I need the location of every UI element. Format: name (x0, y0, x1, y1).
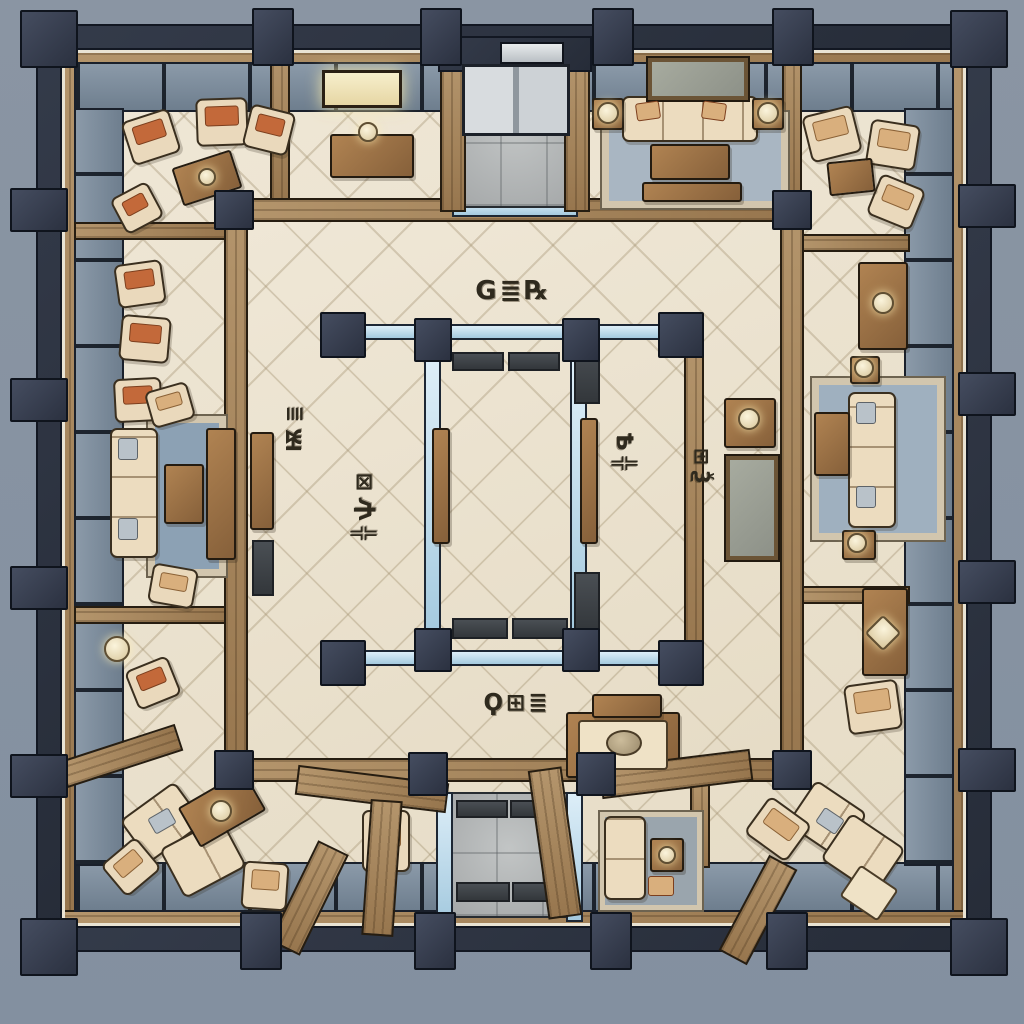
room-label-court-west: ╬ѱ⊠ (352, 467, 377, 540)
court-east-wall (684, 332, 704, 662)
gallery-lamp (738, 408, 760, 430)
south-column-3 (590, 912, 632, 970)
sofa-pillow (118, 518, 138, 540)
table-bowl (198, 168, 216, 186)
inner-column-se (772, 750, 812, 790)
inner-column-s2 (576, 752, 616, 796)
floorplan-illustration: G≣℞ Ѭ≣ ╬ѱ⊠ Ѣ╬ ⊞Ѯ Ϙ⊞≣ (0, 0, 1024, 1024)
sofa-pillow (856, 402, 876, 424)
sofa-pillow (118, 438, 138, 460)
west-column-4 (10, 754, 68, 798)
west-column-1 (10, 188, 68, 232)
cushion (121, 192, 150, 217)
court-column-n2 (562, 318, 600, 362)
wall-east-1 (798, 234, 910, 252)
court-column-se (658, 640, 704, 686)
armchair (195, 97, 249, 147)
court-column-s2 (562, 628, 600, 672)
floor-cushion (648, 876, 674, 896)
cabinet-lamp (872, 292, 894, 314)
sofa-pillow (701, 100, 727, 121)
inner-column-ne (772, 190, 812, 230)
inner-wall-east (780, 198, 804, 782)
tall-console (206, 428, 236, 560)
east-column-3 (958, 560, 1016, 604)
court-doormat-1 (452, 352, 504, 371)
court-column-n1 (414, 318, 452, 362)
south-column-4 (766, 912, 808, 970)
cushion (131, 118, 167, 146)
gallery-art-panel (726, 456, 778, 560)
stair-landing-mat (456, 800, 508, 818)
cushion (812, 114, 850, 142)
sofa (604, 816, 646, 900)
table-lamp (854, 358, 874, 378)
east-column-4 (958, 748, 1016, 792)
floor-lamp (104, 636, 130, 662)
cushion (159, 572, 189, 592)
armchair (113, 259, 167, 309)
court-column-sw (320, 640, 366, 686)
armchair (147, 562, 199, 609)
inner-column-s1 (408, 752, 448, 796)
sofa-pillow (856, 486, 876, 508)
table-bowl (210, 800, 232, 822)
coffee-table (814, 412, 850, 476)
cushion (853, 688, 892, 714)
corner-column-se (950, 918, 1008, 976)
court-door-east (580, 418, 598, 544)
cushion (881, 183, 916, 211)
court-column-nw (320, 312, 366, 358)
cushion (254, 113, 286, 137)
picture-frame (648, 58, 748, 100)
room-label-east-wing: ⊞Ѯ (690, 448, 714, 489)
coffee-table (164, 464, 204, 524)
cushion (762, 807, 801, 843)
frame-south (36, 926, 992, 952)
armchair (118, 314, 172, 364)
wall-west-1 (74, 222, 230, 240)
table-lamp (847, 533, 867, 553)
north-column-2 (420, 8, 462, 66)
cushion (129, 323, 163, 345)
north-column-4 (772, 8, 814, 66)
armchair (865, 118, 922, 171)
sofa-pillow (635, 100, 661, 121)
court-doormat-2 (508, 352, 560, 371)
elevator-header-panel (500, 42, 564, 64)
corner-column-nw (20, 10, 78, 68)
court-glass-north (360, 324, 664, 340)
coffee-table (650, 144, 730, 180)
cushion (135, 666, 167, 692)
south-column-2 (414, 912, 456, 970)
north-column-3 (592, 8, 634, 66)
wall-lightbox (322, 70, 402, 108)
east-column-2 (958, 372, 1016, 416)
cushion (154, 391, 183, 412)
frame-east (966, 24, 992, 952)
west-gallery-shelf (252, 540, 274, 596)
bench-cabinet (592, 694, 662, 718)
corner-column-ne (950, 10, 1008, 68)
vase (358, 122, 378, 142)
inner-column-nw (214, 190, 254, 230)
cushion (204, 105, 239, 127)
coffee-table (826, 158, 875, 197)
south-column-1 (240, 912, 282, 970)
table-lamp (757, 102, 779, 124)
court-step-1 (452, 618, 508, 639)
north-column-1 (252, 8, 294, 66)
media-console (642, 182, 742, 202)
room-label-west-wing: Ѭ≣ (282, 401, 306, 452)
cube-chair (240, 860, 289, 911)
inner-column-sw (214, 750, 254, 790)
court-step-2 (512, 618, 568, 639)
elevator-doors (462, 64, 570, 136)
court-shelf-south (574, 572, 600, 632)
west-gallery-door (250, 432, 274, 530)
west-column-3 (10, 566, 68, 610)
court-door-west (432, 428, 450, 544)
wall-west-2 (74, 606, 230, 624)
cushion (877, 128, 912, 152)
court-column-s1 (414, 628, 452, 672)
court-column-ne (658, 312, 704, 358)
armchair (843, 678, 903, 735)
room-label-court-east: Ѣ╬ (611, 432, 636, 476)
room-label-north: G≣℞ (448, 276, 578, 306)
table-knob (658, 846, 676, 864)
stair-step (456, 882, 510, 902)
corner-column-sw (20, 918, 78, 976)
table-lamp (597, 102, 619, 124)
frame-west (36, 24, 62, 952)
west-column-2 (10, 378, 68, 422)
room-label-south: Ϙ⊞≣ (452, 690, 582, 716)
cushion (112, 848, 144, 879)
east-column-1 (958, 184, 1016, 228)
cushion (123, 268, 155, 290)
court-glass-south (360, 650, 664, 666)
cushion (251, 869, 280, 891)
